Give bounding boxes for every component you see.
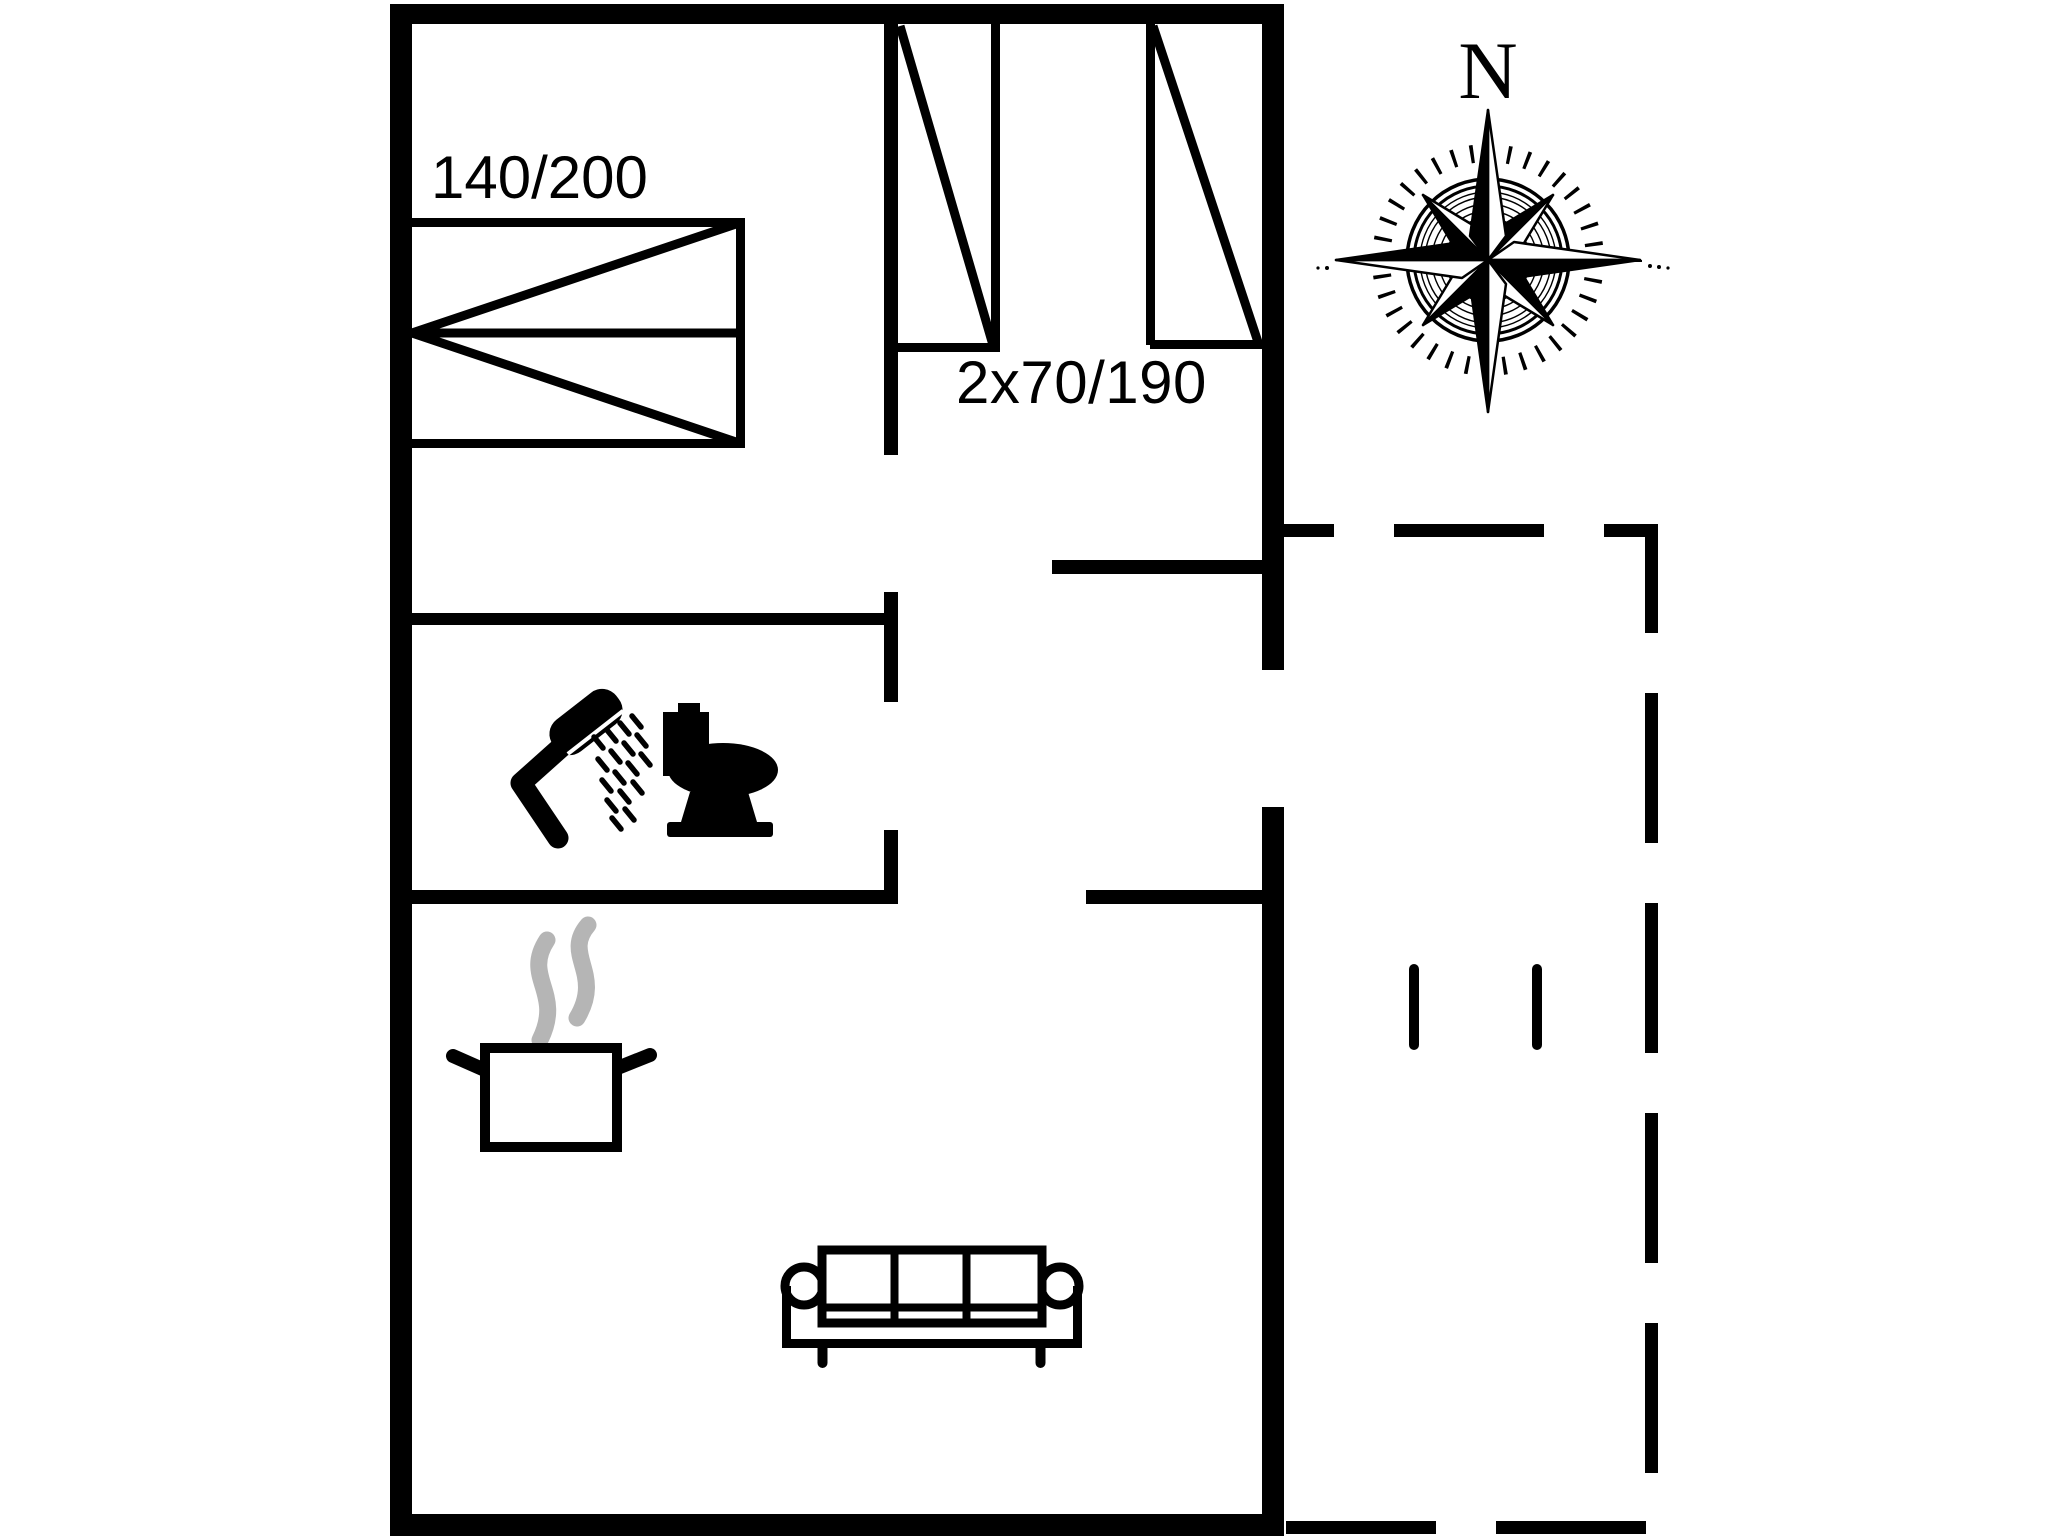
toilet-icon [663,703,778,837]
toilet-pedestal [681,792,757,822]
bathroom-door-opening [884,702,898,830]
wall-hall-top [1052,560,1262,574]
sofa-legs [823,1348,1041,1363]
entrance-door-opening [1262,670,1284,807]
compass-cardinal-needles [1336,110,1640,412]
compass-rose-icon [1316,110,1669,412]
wall-right-upper [1262,4,1284,670]
wall-terrace-stub [1284,524,1334,537]
wall-divider-middle [884,592,898,702]
wall-bedroom-bottom [412,613,898,625]
living-room-passage-opening [898,890,1086,904]
wall-right-lower [1262,807,1284,1536]
sofa-icon [785,1250,1079,1363]
compass-needle-north [1488,110,1506,260]
pot-body [485,1048,617,1147]
cooking-pot-icon [453,1048,650,1147]
steam-swirl-right [577,925,588,1018]
toilet-base [667,822,773,837]
wall-bottom [390,1514,1284,1536]
steam-swirl-left [539,940,548,1040]
double-bed-symbol [412,218,741,448]
bedroom-door-opening [884,455,898,592]
double-bed-dimension-label: 140/200 [431,148,648,208]
floor-plan: 140/200 2x70/190 N [0,0,2048,1536]
single-bed-right-diagonal [1153,26,1258,342]
single-bed-left-diagonal [900,26,993,345]
single-bed-symbol-left [898,24,1000,348]
wall-hall-bottom [1086,890,1262,904]
single-beds-dimension-label: 2x70/190 [956,353,1207,413]
terrace-dashed-outline [1284,531,1652,1528]
shower-icon [521,682,650,838]
compass-north-label: N [1458,30,1517,112]
wall-left [390,4,412,1536]
door-openings [884,455,1284,904]
compass-needle-south [1488,260,1506,412]
sofa-back [822,1250,1042,1323]
terrace-boundary-dashed [1284,531,1652,1528]
toilet-bowl [668,743,778,797]
wall-top [390,4,1284,24]
compass-needle-west [1336,260,1488,278]
single-bed-symbol-right [1150,24,1262,345]
steam-icon [539,925,588,1040]
wall-bathroom-bottom [412,890,898,904]
terrace-post-right [1532,964,1542,1050]
compass-needle-east [1488,242,1640,260]
wall-divider-upper [884,24,898,455]
floor-plan-drawing [0,0,2048,1536]
terrace-post-marks [1409,964,1542,1050]
terrace-post-left [1409,964,1419,1050]
